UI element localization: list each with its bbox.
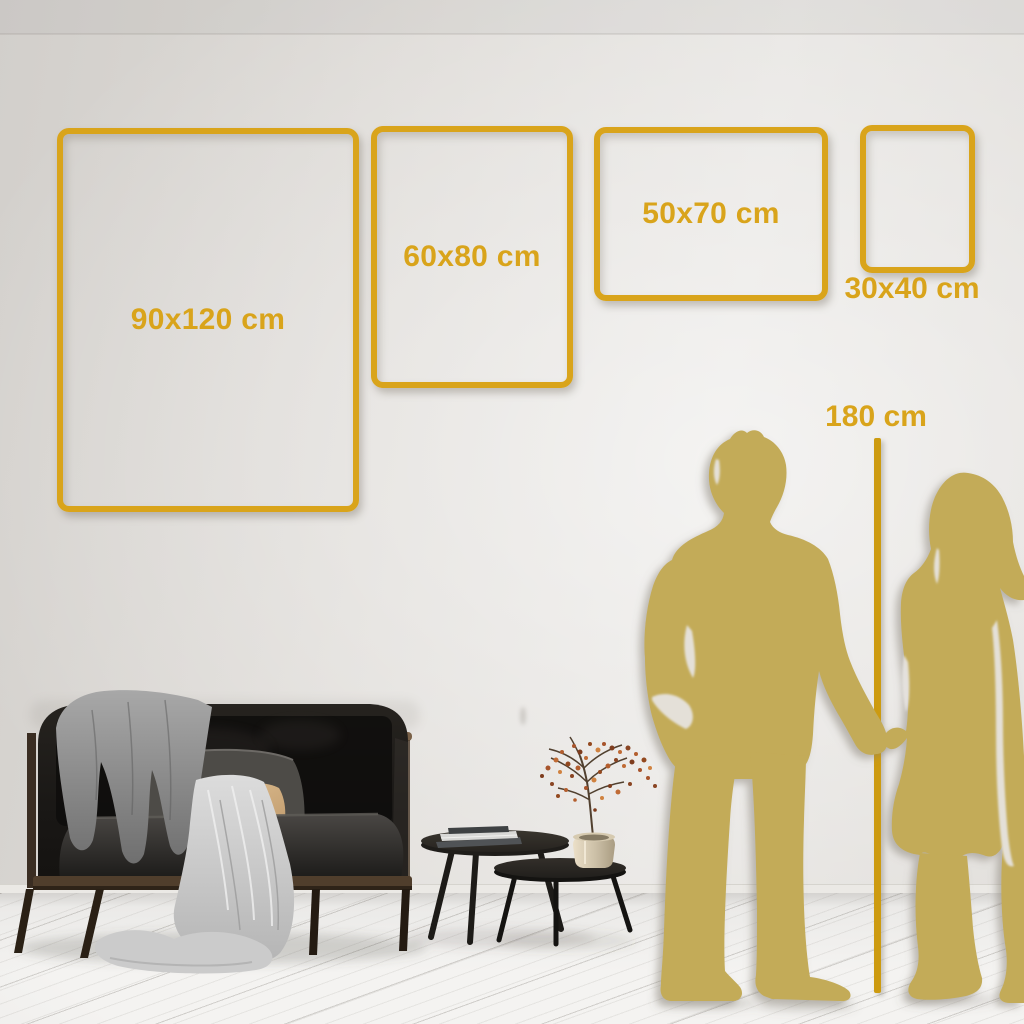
size-guide-scene: 90x120 cm 60x80 cm 50x70 cm 30x40 cm 180… [0,0,1024,1024]
man-left-leg [661,752,742,1001]
couple-silhouettes [0,0,1024,1024]
man-silhouette [644,430,887,779]
woman-left-leg [908,853,982,1000]
woman-right-leg [999,845,1024,1003]
man-right-leg [750,752,851,1001]
